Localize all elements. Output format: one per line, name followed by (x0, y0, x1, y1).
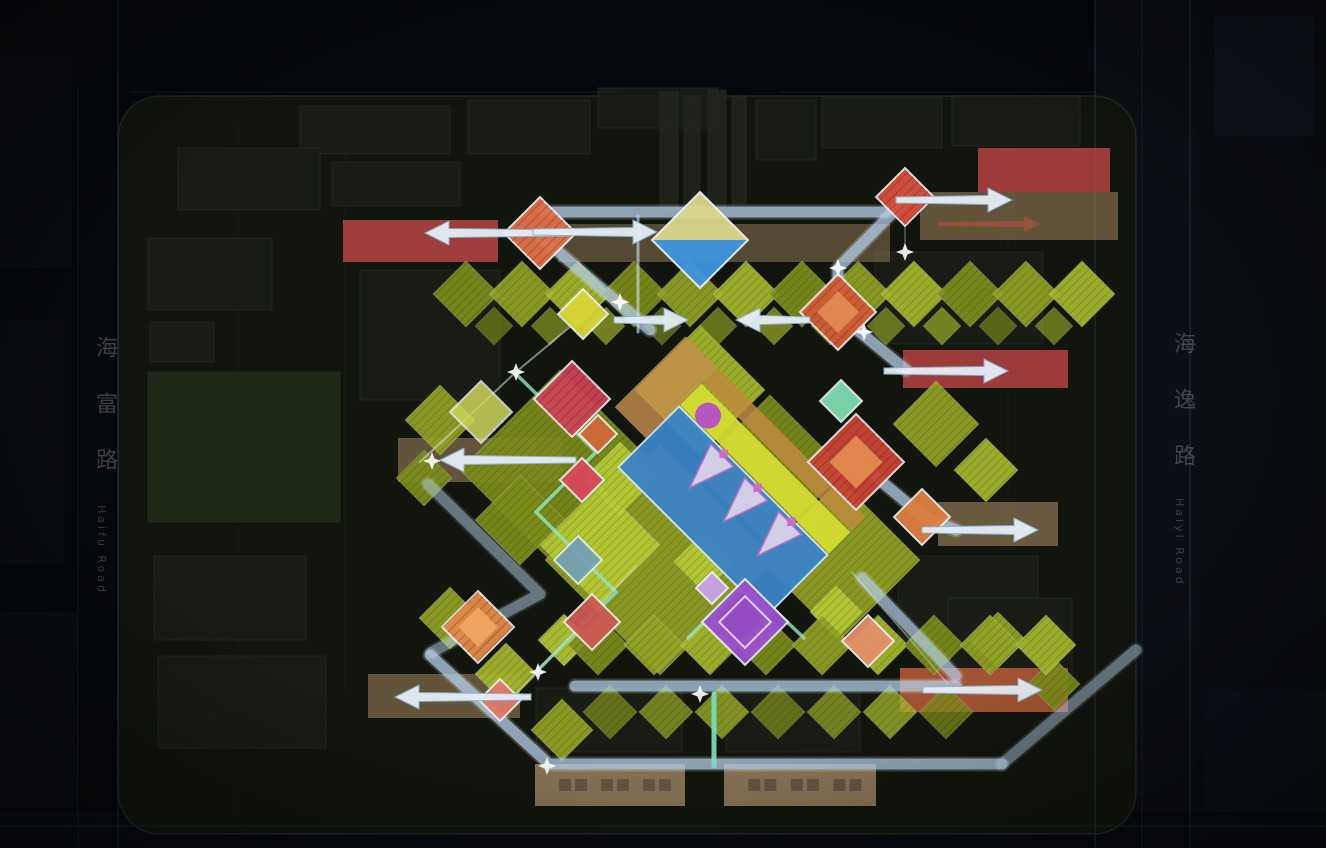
city-block (1214, 16, 1314, 136)
bar-window-mark (659, 779, 671, 791)
bar-window-mark (601, 779, 613, 791)
building-block (300, 106, 450, 154)
building-block (660, 92, 678, 210)
bar-window-mark (764, 779, 776, 791)
building-block (468, 100, 590, 154)
bar-window-mark (748, 779, 760, 791)
bar-window-mark (791, 779, 803, 791)
city-block (0, 56, 72, 268)
highlight-bar (343, 220, 498, 262)
building-block (154, 556, 306, 640)
building-block (150, 322, 214, 362)
bar-window-mark (575, 779, 587, 791)
road-label-left: 海富路 (88, 336, 120, 504)
building-block (158, 656, 326, 748)
road-label-right-en: Haiyi Road (1173, 498, 1186, 587)
city-block (0, 612, 78, 808)
bar-window-mark (807, 779, 819, 791)
building-block (684, 96, 700, 208)
highlight-bar (978, 148, 1110, 192)
site-plan-svg (0, 0, 1326, 848)
bar-window-mark (559, 779, 571, 791)
building-block (332, 162, 460, 206)
bar-window-mark (833, 779, 845, 791)
building-block (732, 96, 746, 204)
road-label-right: 海逸路 (1166, 332, 1198, 500)
city-block (0, 320, 64, 564)
building-block (148, 238, 272, 310)
building-block (756, 100, 816, 160)
sports-field (148, 372, 340, 522)
building-block (708, 90, 726, 206)
building-block (178, 148, 320, 210)
building-block (822, 98, 942, 148)
building-block (952, 96, 1080, 146)
bar-window-mark (617, 779, 629, 791)
site-plan-stage: 海富路 Haifu Road 海逸路 Haiyi Road (0, 0, 1326, 848)
road-label-left-en: Haifu Road (95, 505, 108, 595)
bar-window-mark (643, 779, 655, 791)
bar-window-mark (849, 779, 861, 791)
